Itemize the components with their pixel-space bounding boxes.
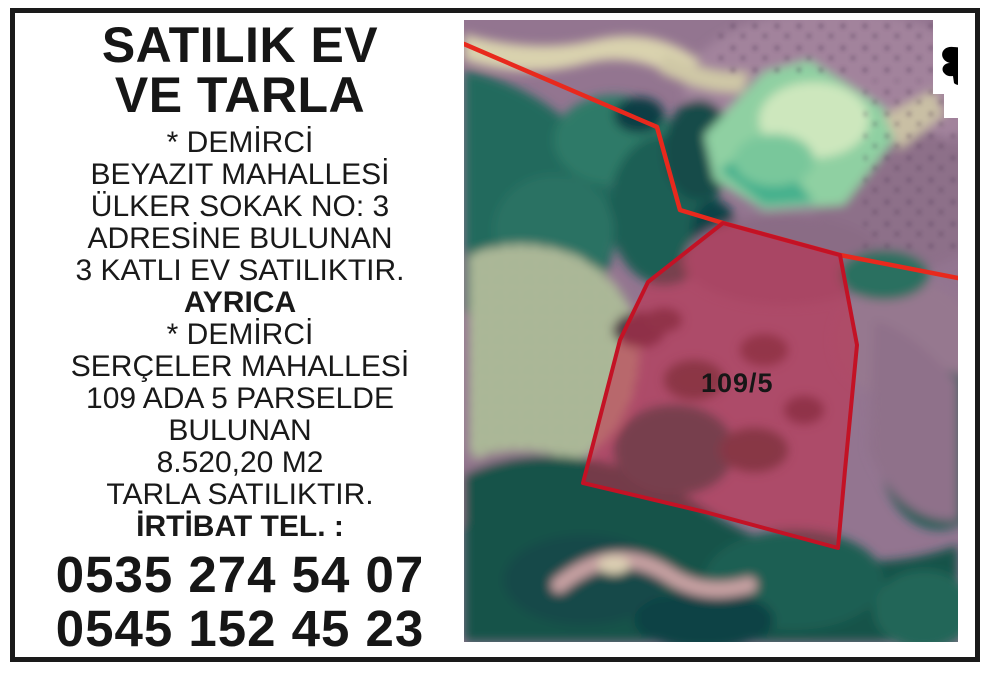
ad-line: 8.520,20 M2 xyxy=(22,447,458,479)
flyer-poster: SATILIK EV VE TARLA * DEMİRCİ BEYAZIT MA… xyxy=(0,0,1000,678)
poster-title-line2: VE TARLA xyxy=(22,70,458,120)
poster-title: SATILIK EV VE TARLA xyxy=(22,14,458,120)
tree-speckle-overlay xyxy=(864,80,958,250)
ad-line: ÜLKER SOKAK NO: 3 xyxy=(22,191,458,223)
ad-line: SERÇELER MAHALLESİ xyxy=(22,351,458,383)
ad-line: 109 ADA 5 PARSELDE xyxy=(22,383,458,415)
phone-numbers: 0535 274 54 07 0545 152 45 23 xyxy=(22,548,458,656)
ad-text-column: SATILIK EV VE TARLA * DEMİRCİ BEYAZIT MA… xyxy=(22,14,458,656)
ad-line: BULUNAN xyxy=(22,415,458,447)
ad-line: TARLA SATILIKTIR. xyxy=(22,479,458,511)
ad-body: * DEMİRCİ BEYAZIT MAHALLESİ ÜLKER SOKAK … xyxy=(22,127,458,543)
ad-line: ADRESİNE BULUNAN xyxy=(22,223,458,255)
ad-line: BEYAZIT MAHALLESİ xyxy=(22,159,458,191)
ad-line: 3 KATLI EV SATILIKTIR. xyxy=(22,255,458,287)
poster-title-line1: SATILIK EV xyxy=(22,20,458,70)
tree-speckle-overlay xyxy=(714,20,958,75)
phone-number: 0545 152 45 23 xyxy=(22,602,458,656)
satellite-map: 109/5 xyxy=(464,20,958,642)
contact-label: İRTİBAT TEL. : xyxy=(22,511,458,543)
map-corner-notch xyxy=(944,94,958,118)
satellite-map-panel: 109/5 xyxy=(464,20,958,642)
ad-line: * DEMİRCİ xyxy=(22,127,458,159)
ad-line-ayrica: AYRICA xyxy=(22,287,458,319)
phone-number: 0535 274 54 07 xyxy=(22,548,458,602)
parcel-number-label: 109/5 xyxy=(701,368,774,398)
ad-line: * DEMİRCİ xyxy=(22,319,458,351)
